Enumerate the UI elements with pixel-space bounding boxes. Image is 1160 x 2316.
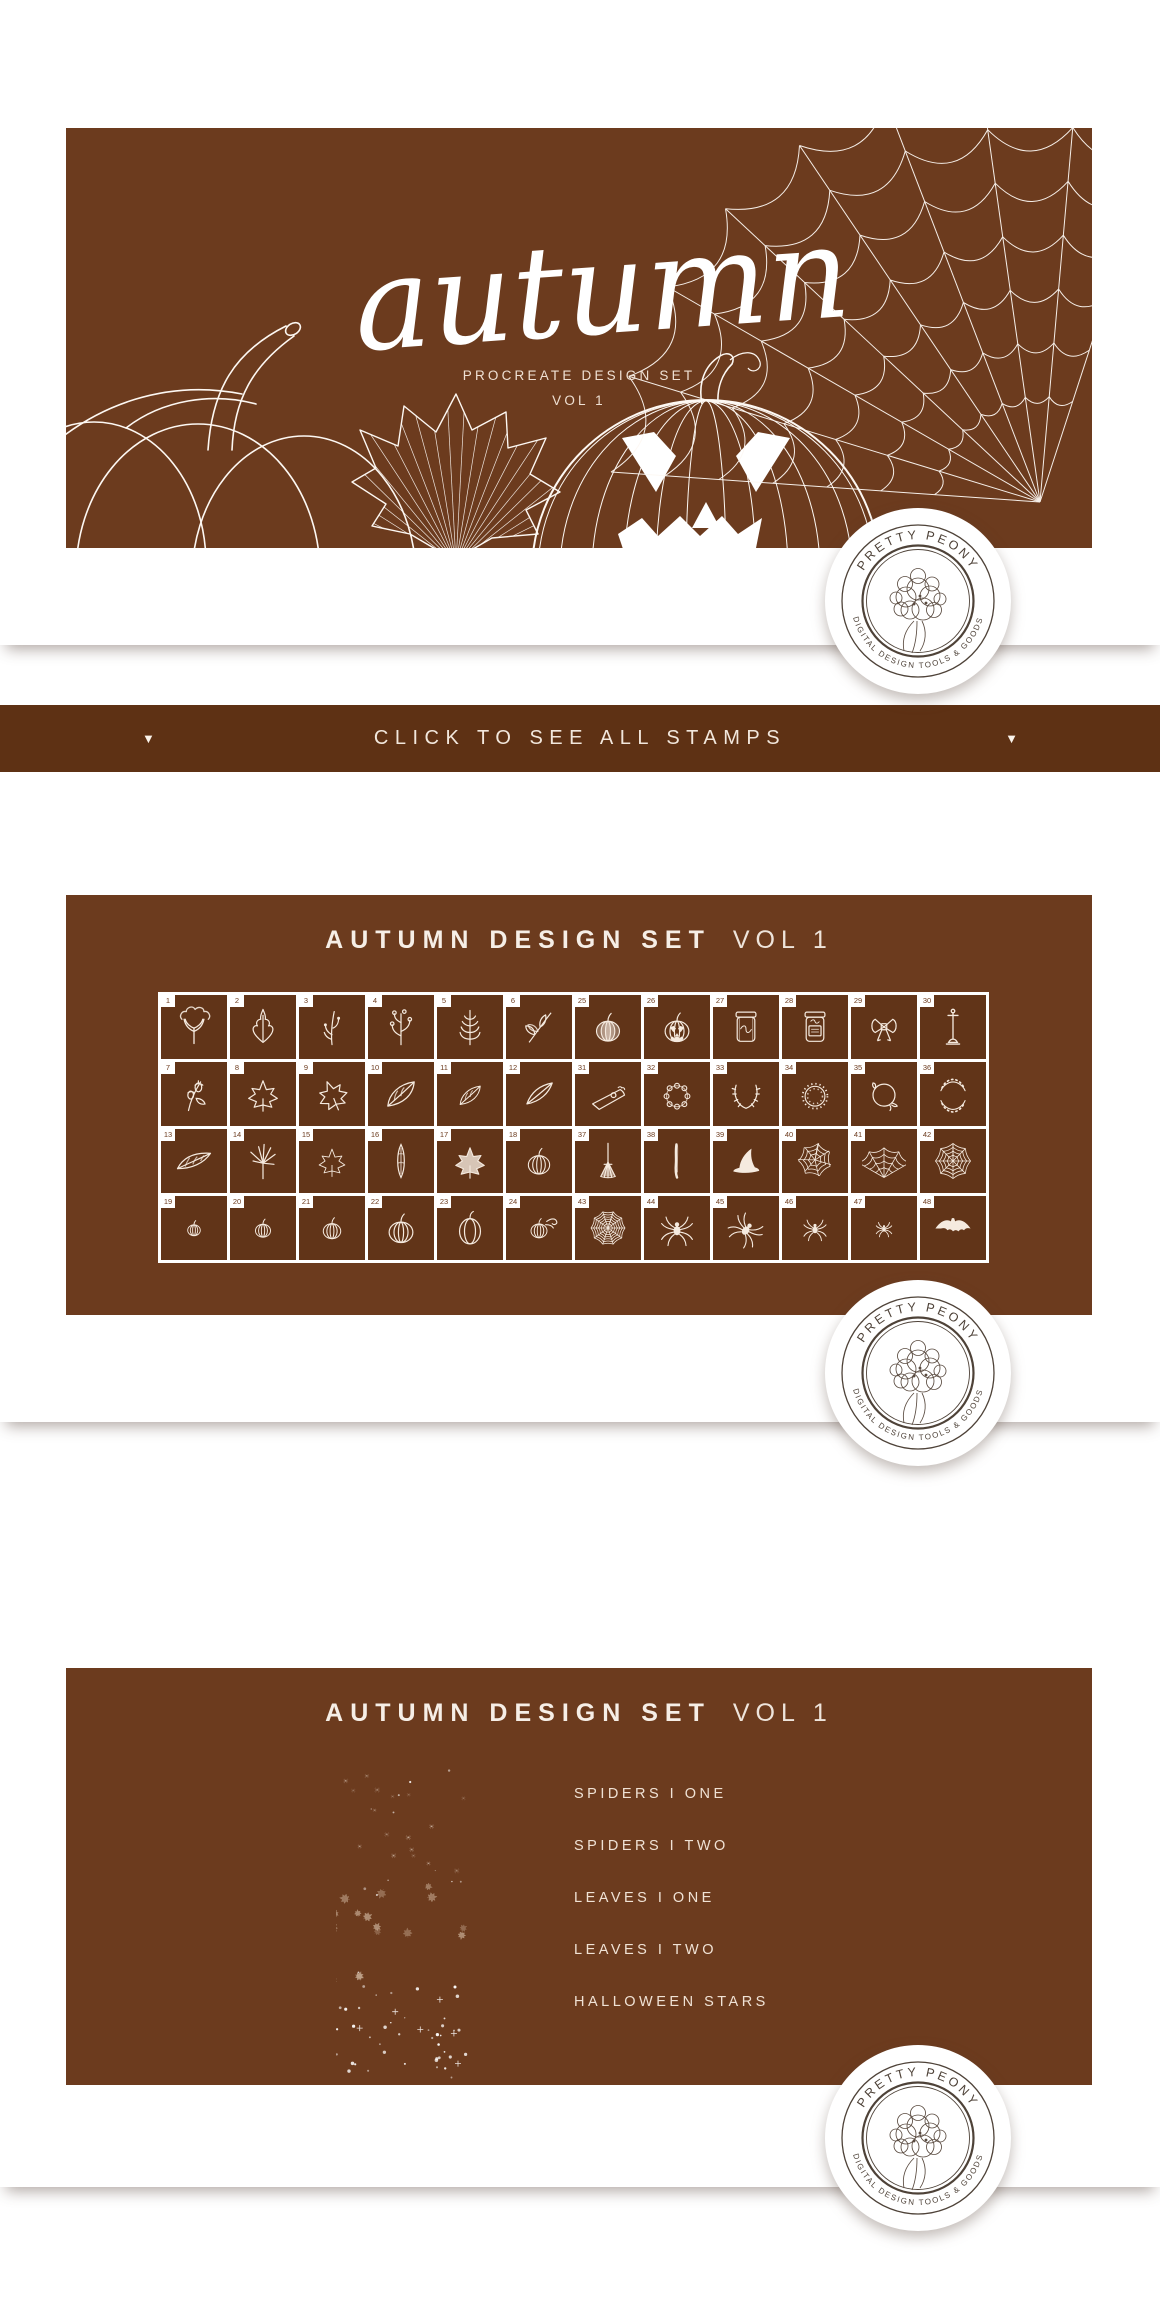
stamp-number: 32 (644, 1062, 658, 1074)
scatter-spider-icon (351, 1789, 355, 1793)
pumpkin-xs-icon (171, 1206, 217, 1250)
web-round-icon (930, 1139, 976, 1183)
stamp-number: 8 (230, 1062, 244, 1074)
stamp-cell: 18 (506, 1129, 572, 1193)
stamp-cell: 34 (782, 1062, 848, 1126)
stamp-number: 28 (782, 995, 796, 1007)
scatter-spider-icon (358, 1845, 362, 1848)
stamp-cell: 5 (437, 995, 503, 1059)
scatter-brush-art (336, 1766, 546, 2081)
broom-icon (585, 1139, 631, 1183)
maple-filled-icon (447, 1139, 493, 1183)
stamp-cell: 23 (437, 1196, 503, 1260)
brush-list-item: LEAVES I ONE (574, 1890, 769, 1908)
stamp-cell: 20 (230, 1196, 296, 1260)
scatter-spider-icon (373, 1809, 376, 1812)
stamp-cell: 32 (644, 1062, 710, 1126)
stamp-number: 10 (368, 1062, 382, 1074)
stamp-number: 30 (920, 995, 934, 1007)
stamp-number: 9 (299, 1062, 313, 1074)
pumpkin-textured-icon (585, 1005, 631, 1049)
stamp-number: 4 (368, 995, 382, 1007)
stamp-cell: 24 (506, 1196, 572, 1260)
stamp-cell: 27 (713, 995, 779, 1059)
pumpkin-sm-icon (240, 1206, 286, 1250)
scatter-spider-icon (412, 1854, 416, 1858)
leafy-branch-icon (516, 1005, 562, 1049)
maple-leaf-2-icon (309, 1072, 355, 1116)
stamp-grid: 1234562526272829307891011123132333435361… (158, 992, 989, 1263)
stamp-cell: 19 (161, 1196, 227, 1260)
stamp-cell: 43 (575, 1196, 641, 1260)
scatter-spider-icon (410, 1848, 414, 1852)
stamp-number: 15 (299, 1129, 313, 1141)
stamp-cell: 8 (230, 1062, 296, 1126)
stamp-cell: 7 (161, 1062, 227, 1126)
stamp-cell: 12 (506, 1062, 572, 1126)
maple-leaf-line-art (280, 386, 633, 548)
stamp-cell: 10 (368, 1062, 434, 1126)
stamp-cell: 44 (644, 1196, 710, 1260)
bow-icon (861, 1005, 907, 1049)
stamp-cell: 25 (575, 995, 641, 1059)
hero-panel: autumn PROCREATE DESIGN SET VOL 1 (66, 128, 1092, 548)
pumpkin-tall-icon (447, 1206, 493, 1250)
stamp-cell: 9 (299, 1062, 365, 1126)
hero-subtitle-line1: PROCREATE DESIGN SET (463, 368, 696, 383)
grid-title-strong: AUTUMN DESIGN SET (325, 926, 711, 954)
scatter-leaf-icon (336, 1909, 340, 1919)
lamp-post-icon (930, 1005, 976, 1049)
scatter-leaf-icon (339, 1893, 351, 1904)
stamp-number: 14 (230, 1129, 244, 1141)
maple-leaf-icon (240, 1072, 286, 1116)
laurel-open-icon (723, 1072, 769, 1116)
stamp-number: 18 (506, 1129, 520, 1141)
scatter-spider-icon (391, 1854, 396, 1858)
stamp-cell: 37 (575, 1129, 641, 1193)
stamp-number: 34 (782, 1062, 796, 1074)
stamp-cell: 31 (575, 1062, 641, 1126)
stamp-cell: 35 (851, 1062, 917, 1126)
stamp-cell: 46 (782, 1196, 848, 1260)
stamp-number: 20 (230, 1196, 244, 1208)
bat-icon (930, 1206, 976, 1250)
hero-line-art: autumn PROCREATE DESIGN SET VOL 1 (66, 128, 1092, 548)
stamp-cell: 21 (299, 1196, 365, 1260)
pumpkin-vine-icon (516, 1206, 562, 1250)
wreath-vine-icon (861, 1072, 907, 1116)
web-dense-icon (585, 1206, 631, 1250)
see-all-stamps-bar[interactable]: ▼ CLICK TO SEE ALL STAMPS ▼ (0, 705, 1160, 772)
scatter-spider-icon (385, 1832, 389, 1836)
scatter-leaf-icon (403, 1928, 413, 1938)
stamp-number: 16 (368, 1129, 382, 1141)
scatter-spider-icon (454, 1869, 459, 1873)
mason-jar-label-icon (792, 1005, 838, 1049)
stamp-cell: 2 (230, 995, 296, 1059)
pretty-peony-badge: PRETTY PEONY DIGITAL DESIGN TOOLS & GOOD… (823, 506, 1013, 696)
scatter-spider-icon (407, 1793, 410, 1796)
stamp-number: 24 (506, 1196, 520, 1208)
scatter-leaf-icon (424, 1882, 433, 1890)
tree-icon (171, 1005, 217, 1049)
stamp-cell: 42 (920, 1129, 986, 1193)
laurel-double-icon (930, 1072, 976, 1116)
scatter-spider-icon (391, 1795, 394, 1798)
scatter-spider-icon (462, 1797, 466, 1800)
hero-subtitle-line2: VOL 1 (552, 393, 606, 408)
stamp-number: 31 (575, 1062, 589, 1074)
scatter-spider-icon (344, 1779, 348, 1783)
stamp-cell: 13 (161, 1129, 227, 1193)
chevron-down-icon[interactable]: ▼ (1005, 705, 1018, 772)
brush-list: SPIDERS I ONESPIDERS I TWOLEAVES I ONELE… (574, 1786, 769, 2046)
brush-list-item: SPIDERS I ONE (574, 1786, 769, 1804)
wreath-foliage-icon (792, 1072, 838, 1116)
spider-icon (654, 1206, 700, 1250)
stamp-number: 27 (713, 995, 727, 1007)
broom-stick-icon (654, 1139, 700, 1183)
scatter-leaf-icon (457, 1931, 466, 1941)
stamp-number: 6 (506, 995, 520, 1007)
brush-list-item: SPIDERS I TWO (574, 1838, 769, 1856)
scatter-spider-icon (429, 1825, 433, 1829)
stamp-number: 41 (851, 1129, 865, 1141)
stamp-number: 44 (644, 1196, 658, 1208)
scatter-leaf-icon (458, 1923, 468, 1933)
stamp-cell: 30 (920, 995, 986, 1059)
stamp-cell: 36 (920, 1062, 986, 1126)
see-all-stamps-label: CLICK TO SEE ALL STAMPS (374, 727, 786, 750)
jack-o-lantern-icon (654, 1005, 700, 1049)
stamp-number: 39 (713, 1129, 727, 1141)
pretty-peony-badge: PRETTY PEONY DIGITAL DESIGN TOOLS & GOOD… (823, 2043, 1013, 2233)
grid-section-title: AUTUMN DESIGN SETVOL 1 (66, 926, 1092, 955)
stamp-number: 45 (713, 1196, 727, 1208)
brush-title-light: VOL 1 (733, 1699, 833, 1727)
stamp-cell: 28 (782, 995, 848, 1059)
oak-leaf-icon (240, 1005, 286, 1049)
scatter-leaf-icon (375, 1887, 388, 1900)
acorn-branch-icon (171, 1072, 217, 1116)
stamp-number: 26 (644, 995, 658, 1007)
stamp-cell: 47 (851, 1196, 917, 1260)
maple-outline-icon (309, 1139, 355, 1183)
stamp-number: 33 (713, 1062, 727, 1074)
witch-hat-icon (723, 1139, 769, 1183)
stamp-number: 21 (299, 1196, 313, 1208)
leaf-icon (378, 1072, 424, 1116)
scatter-leaf-icon (336, 1975, 338, 1986)
scatter-leaf-icon (361, 1911, 374, 1924)
stamp-cell: 39 (713, 1129, 779, 1193)
stamp-number: 42 (920, 1129, 934, 1141)
scatter-spider-icon (427, 1862, 431, 1865)
spider-2-icon (723, 1206, 769, 1250)
stamp-cell: 45 (713, 1196, 779, 1260)
product-gallery-page: autumn PROCREATE DESIGN SET VOL 1 ▼ CLIC… (0, 0, 1160, 2316)
spider-tiny-icon (861, 1206, 907, 1250)
stamp-number: 13 (161, 1129, 175, 1141)
stamp-number: 19 (161, 1196, 175, 1208)
pretty-peony-badge: PRETTY PEONY DIGITAL DESIGN TOOLS & GOOD… (823, 1278, 1013, 1468)
stamp-number: 17 (437, 1129, 451, 1141)
stamp-cell: 1 (161, 995, 227, 1059)
sprig-icon (309, 1005, 355, 1049)
leaf-slim-icon (516, 1072, 562, 1116)
stamp-cell: 38 (644, 1129, 710, 1193)
stamp-cell: 33 (713, 1062, 779, 1126)
pumpkin-md-icon (309, 1206, 355, 1250)
stamp-number: 47 (851, 1196, 865, 1208)
stamp-cell: 41 (851, 1129, 917, 1193)
scatter-spider-icon (375, 1788, 380, 1792)
stamp-number: 40 (782, 1129, 796, 1141)
stamp-number: 46 (782, 1196, 796, 1208)
seed-pod-icon (378, 1139, 424, 1183)
stamp-number: 37 (575, 1129, 589, 1141)
leaf-sm-icon (447, 1072, 493, 1116)
chevron-down-icon[interactable]: ▼ (142, 705, 155, 772)
brush-title-strong: AUTUMN DESIGN SET (325, 1699, 711, 1727)
fern-icon (447, 1005, 493, 1049)
pumpkin-outline-icon (516, 1139, 562, 1183)
brush-list-item: HALLOWEEN STARS (574, 1994, 769, 2012)
hero-script-title: autumn (349, 198, 855, 381)
web-messy-icon (792, 1139, 838, 1183)
stamp-cell: 4 (368, 995, 434, 1059)
spider-sm-icon (792, 1206, 838, 1250)
stamp-number: 7 (161, 1062, 175, 1074)
stamp-number: 25 (575, 995, 589, 1007)
stamp-cell: 40 (782, 1129, 848, 1193)
stamp-cell: 15 (299, 1129, 365, 1193)
stamp-number: 43 (575, 1196, 589, 1208)
grid-title-light: VOL 1 (733, 926, 833, 954)
stamp-cell: 11 (437, 1062, 503, 1126)
scatter-spider-icon (365, 1774, 369, 1778)
wreath-floral-icon (654, 1072, 700, 1116)
mason-jar-icon (723, 1005, 769, 1049)
scatter-leaf-icon (354, 1909, 362, 1917)
long-leaf-icon (171, 1139, 217, 1183)
stamp-number: 23 (437, 1196, 451, 1208)
stamp-number: 12 (506, 1062, 520, 1074)
scatter-leaf-icon (426, 1892, 437, 1903)
stamp-number: 1 (161, 995, 175, 1007)
cobweb-icon (861, 1139, 907, 1183)
berry-branch-icon (378, 1005, 424, 1049)
stamp-cell: 48 (920, 1196, 986, 1260)
stamp-number: 5 (437, 995, 451, 1007)
stamp-number: 36 (920, 1062, 934, 1074)
stamp-number: 22 (368, 1196, 382, 1208)
brush-panel: AUTUMN DESIGN SETVOL 1 SPIDERS I ONESPID… (66, 1668, 1092, 2085)
stamp-cell: 6 (506, 995, 572, 1059)
stamp-number: 11 (437, 1062, 451, 1074)
stamp-number: 29 (851, 995, 865, 1007)
stamp-cell: 16 (368, 1129, 434, 1193)
scatter-leaf-icon (336, 1921, 340, 1934)
stamp-cell: 22 (368, 1196, 434, 1260)
scatter-spider-icon (406, 1835, 411, 1839)
stamp-number: 38 (644, 1129, 658, 1141)
stamp-cell: 26 (644, 995, 710, 1059)
stamp-grid-panel: AUTUMN DESIGN SETVOL 1 12345625262728293… (66, 895, 1092, 1315)
stamp-number: 48 (920, 1196, 934, 1208)
jp-maple-icon (240, 1139, 286, 1183)
brush-section-title: AUTUMN DESIGN SETVOL 1 (66, 1699, 1092, 1728)
stamp-cell: 14 (230, 1129, 296, 1193)
brush-list-item: LEAVES I TWO (574, 1942, 769, 1960)
stamp-cell: 17 (437, 1129, 503, 1193)
stamp-number: 3 (299, 995, 313, 1007)
stamp-number: 2 (230, 995, 244, 1007)
pie-slice-icon (585, 1072, 631, 1116)
stamp-cell: 29 (851, 995, 917, 1059)
stamp-number: 35 (851, 1062, 865, 1074)
pumpkin-lg-icon (378, 1206, 424, 1250)
stamp-cell: 3 (299, 995, 365, 1059)
